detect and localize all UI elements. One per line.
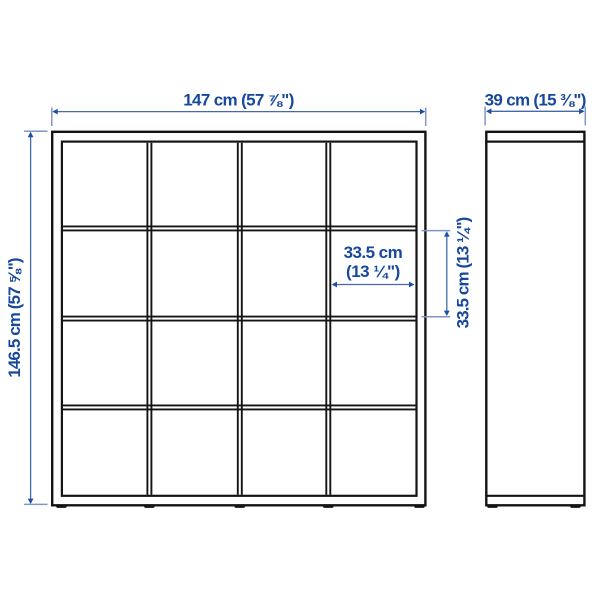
svg-text:147 cm (57 ⅞"): 147 cm (57 ⅞"): [183, 91, 293, 110]
svg-text:33.5 cm: 33.5 cm: [344, 243, 403, 262]
svg-text:39 cm (15 ⅜"): 39 cm (15 ⅜"): [485, 91, 586, 110]
svg-text:146.5 cm (57 ⅝"): 146.5 cm (57 ⅝"): [5, 258, 24, 378]
svg-text:(13 ¼"): (13 ¼"): [346, 262, 400, 281]
svg-text:33.5 cm (13 ¼"): 33.5 cm (13 ¼"): [454, 217, 473, 328]
